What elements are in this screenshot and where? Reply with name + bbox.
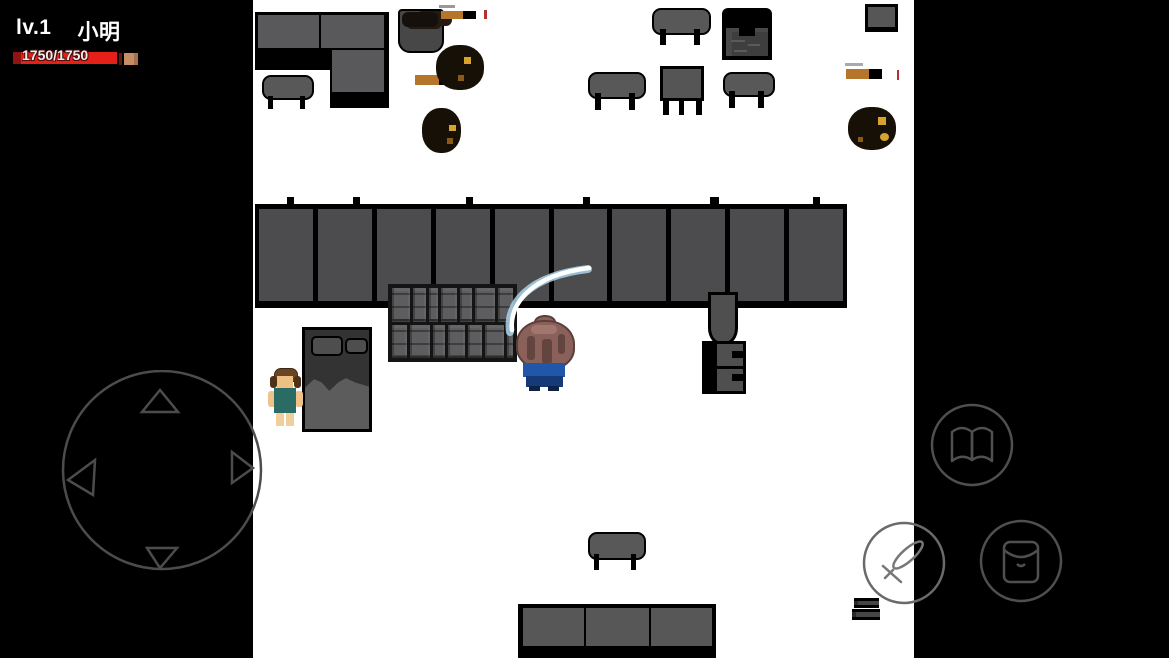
wall-chair [708,292,738,345]
stone-crate-pile [388,284,517,362]
bag-icon [1004,542,1038,582]
table-leg [679,101,684,115]
frying-pan-handle-tip [869,69,882,79]
kitchen-counter [321,15,384,48]
game-screen: lv.1 小明 1750/1750 [0,0,1169,658]
burnt-food-pile [848,107,896,150]
bench-leg [694,29,700,45]
npc-face [277,376,293,388]
player-hud: lv.1 小明 1750/1750 [16,16,120,46]
joystick-up-arrow [142,390,178,412]
wall-peg [353,197,360,206]
stool-leg [300,96,305,109]
bench-leg [729,91,735,108]
table-leg [663,101,669,115]
picture-frame [865,4,898,32]
drawer-cabinet [702,341,746,394]
player-character [515,317,575,390]
book-button[interactable] [929,402,1015,488]
wall-peg [466,197,473,206]
kitchen-counter [332,50,384,92]
player-shirt [523,363,565,377]
frying-pan-handle [441,11,463,19]
wall-peg [287,197,294,206]
bed-blanket [305,376,369,429]
bag-button[interactable] [978,518,1064,604]
wall-peg [712,197,719,206]
stool-leg [268,96,273,109]
npc-body [274,388,296,413]
npc-leg [286,413,294,426]
drawer-handle [732,351,743,358]
damage-tick [484,10,487,19]
joystick-down-arrow [147,548,177,568]
pot-stew [402,12,438,27]
stove-chest [722,8,772,60]
virtual-joystick[interactable] [60,370,266,576]
wall-peg [813,197,820,206]
player-foot [529,386,540,391]
npc-villager [268,367,304,428]
wall-peg [583,197,590,206]
frying-pan-handle-tip [463,11,476,19]
bench-leg [660,29,666,45]
bench-leg [758,91,764,108]
player-level: lv.1 [16,16,51,46]
pillow [345,338,368,354]
npc-arm [295,391,303,407]
player-foot [548,386,559,391]
drawer-handle [732,374,743,381]
npc-hair-tuft [270,376,277,388]
sword-icon [883,538,926,582]
kitchen-counter [258,15,319,48]
book-icon [952,428,992,461]
frying-pan-handle [846,69,869,79]
burnt-food-pile [422,108,461,153]
table-leg [696,101,702,115]
bench-leg [594,554,599,570]
npc-hair-tuft [294,376,301,388]
hp-bar-wrap: 1750/1750 [13,49,153,65]
sword-button[interactable] [861,520,947,606]
game-viewport [253,0,914,658]
pan-smudge [439,5,455,8]
square-table [660,66,704,101]
joystick-left-arrow [68,460,95,495]
bottom-counter-row [518,604,716,658]
frying-pan-handle [415,75,439,85]
npc-leg [276,413,284,426]
bed [302,327,372,432]
pillow [311,336,343,356]
buff-indicator [124,53,138,65]
joystick-right-arrow [232,452,253,483]
hp-value: 1750/1750 [22,47,88,63]
buff-separator [119,53,122,65]
pan-smudge [845,63,863,66]
bench-leg [595,93,601,110]
damage-tick [897,70,899,80]
bench-leg [629,93,635,110]
player-name: 小明 [77,16,120,46]
cooking-pot [398,9,444,53]
burnt-food-pile [436,45,484,90]
bench-leg [631,554,636,570]
